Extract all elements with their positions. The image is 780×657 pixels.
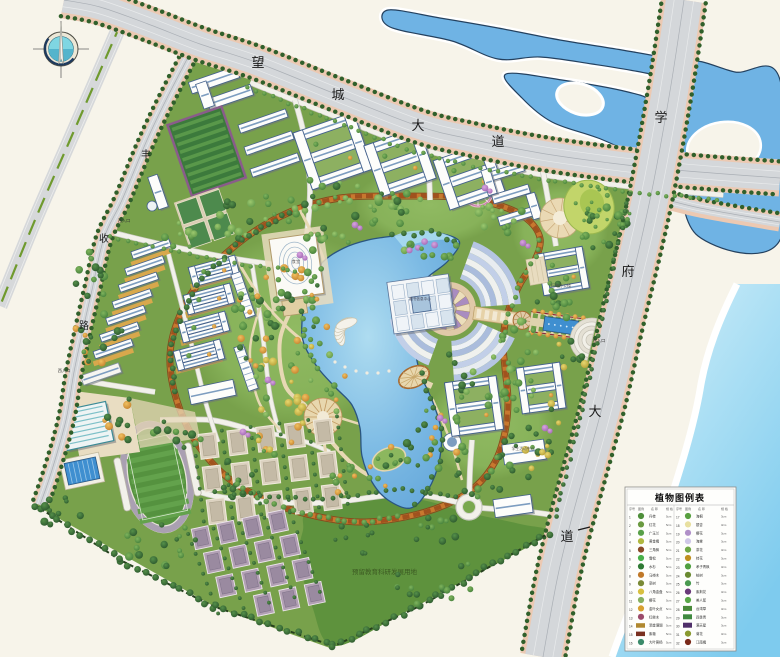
svg-text:5cm: 5cm bbox=[666, 573, 672, 577]
svg-text:3cm: 3cm bbox=[721, 590, 727, 594]
svg-text:5cm: 5cm bbox=[666, 615, 672, 619]
svg-text:银杏: 银杏 bbox=[696, 522, 703, 527]
svg-text:洒金珊瑚: 洒金珊瑚 bbox=[649, 623, 663, 628]
svg-text:31: 31 bbox=[676, 633, 680, 637]
svg-text:18: 18 bbox=[676, 524, 680, 528]
svg-text:7: 7 bbox=[629, 566, 631, 570]
svg-text:5cm: 5cm bbox=[666, 641, 672, 645]
svg-text:府: 府 bbox=[621, 264, 634, 279]
svg-text:5cm: 5cm bbox=[666, 548, 672, 552]
svg-text:水杉: 水杉 bbox=[649, 564, 656, 569]
svg-text:4: 4 bbox=[629, 541, 631, 545]
svg-text:5cm: 5cm bbox=[666, 531, 672, 535]
svg-text:17: 17 bbox=[676, 516, 680, 520]
svg-text:丹桂: 丹桂 bbox=[649, 514, 656, 519]
svg-text:图书信息中心: 图书信息中心 bbox=[409, 296, 431, 301]
svg-text:满天星: 满天星 bbox=[696, 623, 707, 628]
svg-text:3cm: 3cm bbox=[721, 557, 727, 561]
svg-text:5cm: 5cm bbox=[666, 540, 672, 544]
svg-text:紫荆花: 紫荆花 bbox=[696, 589, 707, 594]
svg-text:大: 大 bbox=[411, 118, 424, 133]
svg-text:菊花: 菊花 bbox=[696, 631, 703, 636]
svg-text:2: 2 bbox=[629, 524, 631, 528]
svg-text:3cm: 3cm bbox=[721, 641, 727, 645]
svg-text:道: 道 bbox=[560, 529, 573, 544]
svg-text:图例: 图例 bbox=[685, 506, 691, 511]
svg-text:红继木: 红继木 bbox=[649, 614, 660, 619]
svg-text:9: 9 bbox=[629, 583, 631, 587]
svg-text:10: 10 bbox=[629, 591, 633, 595]
svg-text:3cm: 3cm bbox=[721, 632, 727, 636]
svg-text:5cm: 5cm bbox=[666, 523, 672, 527]
svg-text:15: 15 bbox=[629, 633, 633, 637]
svg-text:马褂木: 马褂木 bbox=[649, 572, 660, 577]
svg-text:图例: 图例 bbox=[638, 506, 644, 511]
svg-text:3cm: 3cm bbox=[721, 599, 727, 603]
svg-text:丰: 丰 bbox=[141, 148, 151, 161]
svg-text:1: 1 bbox=[629, 516, 631, 520]
svg-text:3cm: 3cm bbox=[721, 523, 727, 527]
svg-text:5: 5 bbox=[629, 549, 631, 553]
svg-text:栾树: 栾树 bbox=[649, 581, 656, 586]
svg-text:雪松: 雪松 bbox=[649, 556, 656, 561]
svg-text:5cm: 5cm bbox=[666, 607, 672, 611]
svg-text:植物图例表: 植物图例表 bbox=[654, 492, 705, 503]
svg-text:25: 25 bbox=[676, 583, 680, 587]
svg-text:3cm: 3cm bbox=[721, 615, 727, 619]
svg-text:27: 27 bbox=[676, 600, 680, 604]
svg-text:路: 路 bbox=[79, 319, 89, 332]
svg-text:5cm: 5cm bbox=[666, 590, 672, 594]
svg-text:规 格: 规 格 bbox=[721, 506, 728, 511]
svg-text:3cm: 3cm bbox=[721, 607, 727, 611]
svg-text:孝子青枫: 孝子青枫 bbox=[696, 564, 710, 569]
svg-text:21: 21 bbox=[676, 549, 680, 553]
svg-text:28: 28 bbox=[676, 608, 680, 612]
svg-text:3cm: 3cm bbox=[721, 565, 727, 569]
svg-text:学生活动中心: 学生活动中心 bbox=[512, 446, 535, 451]
svg-text:3cm: 3cm bbox=[721, 548, 727, 552]
svg-text:5cm: 5cm bbox=[666, 565, 672, 569]
svg-text:29: 29 bbox=[676, 616, 680, 620]
svg-text:序号: 序号 bbox=[676, 506, 682, 511]
svg-text:八角金盘: 八角金盘 bbox=[649, 589, 663, 594]
svg-text:广玉兰: 广玉兰 bbox=[649, 530, 660, 535]
svg-text:14: 14 bbox=[629, 625, 633, 629]
svg-text:23: 23 bbox=[676, 566, 680, 570]
svg-text:食堂: 食堂 bbox=[292, 258, 300, 265]
svg-text:收: 收 bbox=[99, 232, 109, 245]
svg-text:行政办公楼: 行政办公楼 bbox=[551, 282, 571, 288]
svg-text:茶花: 茶花 bbox=[696, 547, 703, 552]
svg-text:名 称: 名 称 bbox=[698, 506, 705, 511]
svg-text:5cm: 5cm bbox=[666, 599, 672, 603]
svg-text:台湾草: 台湾草 bbox=[696, 606, 707, 611]
svg-text:22: 22 bbox=[676, 558, 680, 562]
svg-text:海桐: 海桐 bbox=[696, 514, 703, 519]
svg-text:16: 16 bbox=[629, 642, 633, 646]
svg-text:道: 道 bbox=[491, 134, 504, 149]
svg-text:紫薇: 紫薇 bbox=[649, 631, 656, 636]
svg-text:序号: 序号 bbox=[629, 506, 635, 511]
svg-text:3cm: 3cm bbox=[721, 582, 727, 586]
svg-text:大: 大 bbox=[588, 404, 601, 419]
svg-text:3cm: 3cm bbox=[721, 540, 727, 544]
svg-text:3cm: 3cm bbox=[721, 624, 727, 628]
svg-text:3cm: 3cm bbox=[721, 531, 727, 535]
svg-text:桂花: 桂花 bbox=[696, 556, 703, 561]
svg-text:5cm: 5cm bbox=[666, 515, 672, 519]
svg-text:5cm: 5cm bbox=[666, 582, 672, 586]
svg-text:11: 11 bbox=[629, 600, 633, 604]
svg-text:预留教育科研发展用地: 预留教育科研发展用地 bbox=[352, 567, 418, 576]
svg-text:19: 19 bbox=[676, 532, 680, 536]
svg-text:大叶黄杨: 大叶黄杨 bbox=[649, 640, 663, 645]
svg-text:四季青: 四季青 bbox=[696, 614, 707, 619]
svg-text:32: 32 bbox=[676, 642, 680, 646]
svg-text:樱花: 樱花 bbox=[649, 598, 656, 603]
svg-text:江南槐: 江南槐 bbox=[696, 640, 707, 645]
svg-text:26: 26 bbox=[676, 591, 680, 595]
svg-text:8: 8 bbox=[629, 574, 631, 578]
svg-text:30: 30 bbox=[676, 625, 680, 629]
svg-text:5cm: 5cm bbox=[666, 624, 672, 628]
svg-text:24: 24 bbox=[676, 574, 680, 578]
svg-text:柏树: 柏树 bbox=[696, 572, 703, 577]
svg-text:6: 6 bbox=[629, 558, 631, 562]
svg-text:黄金槐: 黄金槐 bbox=[649, 539, 660, 544]
svg-text:城: 城 bbox=[331, 87, 344, 102]
svg-text:美人蕉: 美人蕉 bbox=[696, 598, 707, 603]
svg-text:规 格: 规 格 bbox=[666, 506, 673, 511]
svg-text:东入口: 东入口 bbox=[593, 337, 606, 343]
svg-text:3cm: 3cm bbox=[721, 573, 727, 577]
svg-text:樱花: 樱花 bbox=[696, 530, 703, 535]
svg-text:海棠: 海棠 bbox=[696, 539, 703, 544]
svg-text:望: 望 bbox=[251, 55, 264, 70]
svg-text:名 称: 名 称 bbox=[651, 506, 658, 511]
svg-text:学: 学 bbox=[654, 110, 667, 125]
svg-text:13: 13 bbox=[629, 616, 633, 620]
svg-text:3: 3 bbox=[629, 532, 631, 536]
svg-text:5cm: 5cm bbox=[666, 557, 672, 561]
svg-text:5cm: 5cm bbox=[666, 632, 672, 636]
svg-text:红花: 红花 bbox=[649, 522, 656, 527]
svg-text:20: 20 bbox=[676, 541, 680, 545]
svg-text:3cm: 3cm bbox=[721, 515, 727, 519]
svg-text:金叶女贞: 金叶女贞 bbox=[649, 606, 663, 611]
svg-text:12: 12 bbox=[629, 608, 633, 612]
svg-text:三角枫: 三角枫 bbox=[649, 547, 660, 552]
